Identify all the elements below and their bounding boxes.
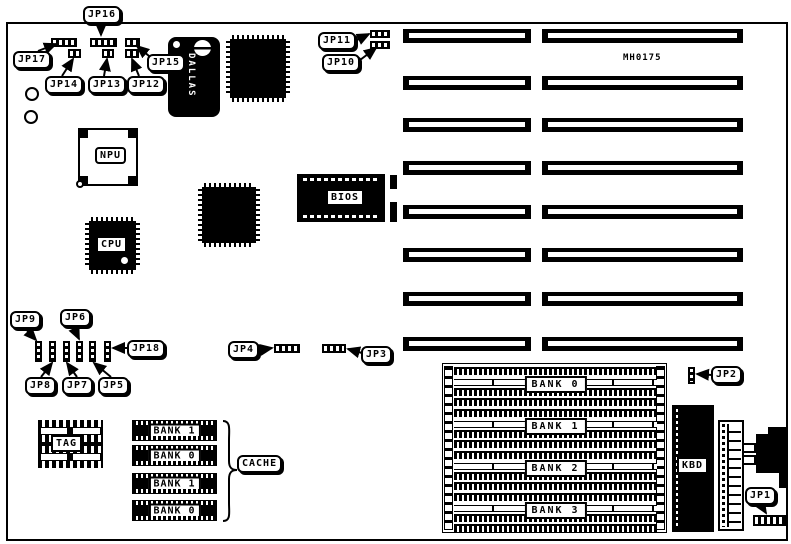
socket-corner — [79, 129, 88, 138]
isa-slot-l6 — [403, 248, 531, 262]
isa-slot-l3 — [403, 118, 531, 132]
simm-bank-2: BANK 2 — [454, 451, 657, 491]
isa-slot-r4 — [542, 161, 743, 175]
simm-pins — [454, 482, 657, 490]
jumper-jp9-pins — [35, 341, 42, 362]
npu-socket: NPU — [78, 128, 138, 186]
keyboard-din-connector-top — [768, 427, 788, 435]
jumper-jp2-pins — [688, 367, 695, 384]
simm-rail-right — [656, 366, 665, 530]
dip-pins — [38, 420, 103, 427]
motherboard-diagram: MH0175 DALLAS NPU CPU BIOS — [0, 0, 791, 544]
tag-label: TAG — [51, 435, 82, 452]
dallas-logo-icon — [194, 40, 211, 56]
label-jp13: JP13 — [88, 76, 126, 94]
simm-pins — [454, 409, 657, 417]
jumper-jp8-pins — [49, 341, 56, 362]
jumper-jp17-pins — [51, 38, 77, 47]
jumper-jp12-pins — [125, 49, 139, 58]
jumper-jp16-pins — [90, 38, 117, 47]
cache-bank-label: BANK 1 — [148, 476, 200, 491]
isa-slot-l8 — [403, 337, 531, 351]
npu-pin1-marker — [76, 180, 84, 188]
dip-body — [40, 427, 101, 435]
chipset-qfp-center — [198, 183, 260, 247]
chipset-qfp-top — [226, 35, 290, 102]
label-jp5: JP5 — [98, 377, 129, 395]
simm-pins — [454, 524, 657, 532]
label-jp6: JP6 — [60, 309, 91, 327]
label-jp2: JP2 — [711, 366, 742, 384]
isa-slot-l7 — [403, 292, 531, 306]
isa-slot-l1 — [403, 29, 531, 43]
kbd-controller-chip: KBD — [672, 405, 714, 532]
label-jp1: JP1 — [745, 487, 776, 505]
isa-slot-l5 — [403, 205, 531, 219]
cache-bank-label: BANK 0 — [148, 448, 200, 463]
small-component — [390, 202, 397, 222]
jumper-jp6-pins — [76, 341, 83, 362]
label-jp12: JP12 — [127, 76, 165, 94]
cache-chip-3: BANK 1 — [132, 473, 217, 494]
label-jp7: JP7 — [62, 377, 93, 395]
isa-slot-r5 — [542, 205, 743, 219]
jumper-jp10-pins — [370, 41, 390, 49]
keyboard-din-connector-bottom — [779, 473, 788, 488]
mounting-hole — [25, 87, 39, 101]
bank-label: BANK 2 — [524, 460, 586, 477]
cache-label: CACHE — [237, 455, 282, 473]
bios-chip: BIOS — [297, 174, 385, 222]
din-pin-block — [742, 443, 756, 453]
simm-bank-0: BANK 0 — [454, 367, 657, 407]
bank-label: BANK 1 — [524, 418, 586, 435]
dip-body — [40, 453, 101, 461]
simm-bank-1: BANK 1 — [454, 409, 657, 449]
label-jp3: JP3 — [361, 346, 392, 364]
simm-rail-left — [444, 366, 453, 530]
simm-pins — [454, 451, 657, 459]
rtc-dallas-chip: DALLAS — [168, 37, 220, 117]
rtc-pin1-dot — [173, 41, 180, 48]
simm-pins — [454, 367, 657, 375]
jumper-jp11-pins — [370, 30, 390, 38]
jumper-jp1-pins — [753, 515, 787, 526]
simm-bank-area: BANK 0 BANK 1 BANK 2 BANK 3 — [442, 363, 667, 533]
rtc-brand-text: DALLAS — [186, 53, 196, 98]
cpu-chip: CPU — [85, 217, 140, 274]
label-jp14: JP14 — [45, 76, 83, 94]
bank-label: BANK 0 — [524, 376, 586, 393]
cache-bank-label: BANK 0 — [148, 503, 200, 518]
jumper-jp13-pins — [102, 49, 114, 58]
dip-pins — [38, 461, 103, 468]
isa-slot-r7 — [542, 292, 743, 306]
board-outline — [6, 22, 788, 541]
jumper-jp4-pins — [274, 344, 300, 353]
din-pin-block — [742, 455, 756, 465]
label-jp9: JP9 — [10, 311, 41, 329]
cache-bank-label: BANK 1 — [148, 423, 200, 438]
cpu-label: CPU — [96, 236, 127, 253]
bios-label: BIOS — [326, 189, 364, 206]
cpu-pin1-dot — [121, 257, 128, 264]
label-jp10: JP10 — [322, 54, 360, 72]
cache-chip-1: BANK 1 — [132, 420, 217, 441]
label-jp18: JP18 — [127, 340, 165, 358]
label-jp16: JP16 — [83, 6, 121, 24]
label-jp15: JP15 — [147, 54, 185, 72]
label-jp17: JP17 — [13, 51, 51, 69]
isa-slot-r1 — [542, 29, 743, 43]
jumper-jp18-pins — [104, 341, 111, 362]
small-component — [390, 175, 397, 189]
simm-bank-3: BANK 3 — [454, 493, 657, 533]
npu-label: NPU — [95, 147, 126, 164]
isa-slot-r6 — [542, 248, 743, 262]
board-part-number: MH0175 — [623, 53, 662, 63]
label-jp8: JP8 — [25, 377, 56, 395]
jumper-jp5-pins — [89, 341, 96, 362]
jumper-jp15-pins — [125, 38, 140, 47]
power-connector — [718, 420, 744, 531]
jumper-jp7-pins — [63, 341, 70, 362]
jumper-jp14-pins — [68, 49, 81, 58]
simm-pins — [454, 493, 657, 501]
kbd-label: KBD — [677, 457, 708, 474]
socket-corner — [128, 176, 137, 185]
label-jp11: JP11 — [318, 32, 356, 50]
cache-chip-4: BANK 0 — [132, 500, 217, 521]
jumper-jp3-pins — [322, 344, 346, 353]
isa-slot-l4 — [403, 161, 531, 175]
simm-pins — [454, 440, 657, 448]
socket-corner — [128, 129, 137, 138]
cache-chip-2: BANK 0 — [132, 445, 217, 466]
isa-slot-l2 — [403, 76, 531, 90]
bank-label: BANK 3 — [524, 502, 586, 519]
simm-pins — [454, 398, 657, 406]
isa-slot-r3 — [542, 118, 743, 132]
isa-slot-r2 — [542, 76, 743, 90]
label-jp4: JP4 — [228, 341, 259, 359]
keyboard-din-connector — [756, 434, 788, 473]
mounting-hole — [24, 110, 38, 124]
isa-slot-r8 — [542, 337, 743, 351]
